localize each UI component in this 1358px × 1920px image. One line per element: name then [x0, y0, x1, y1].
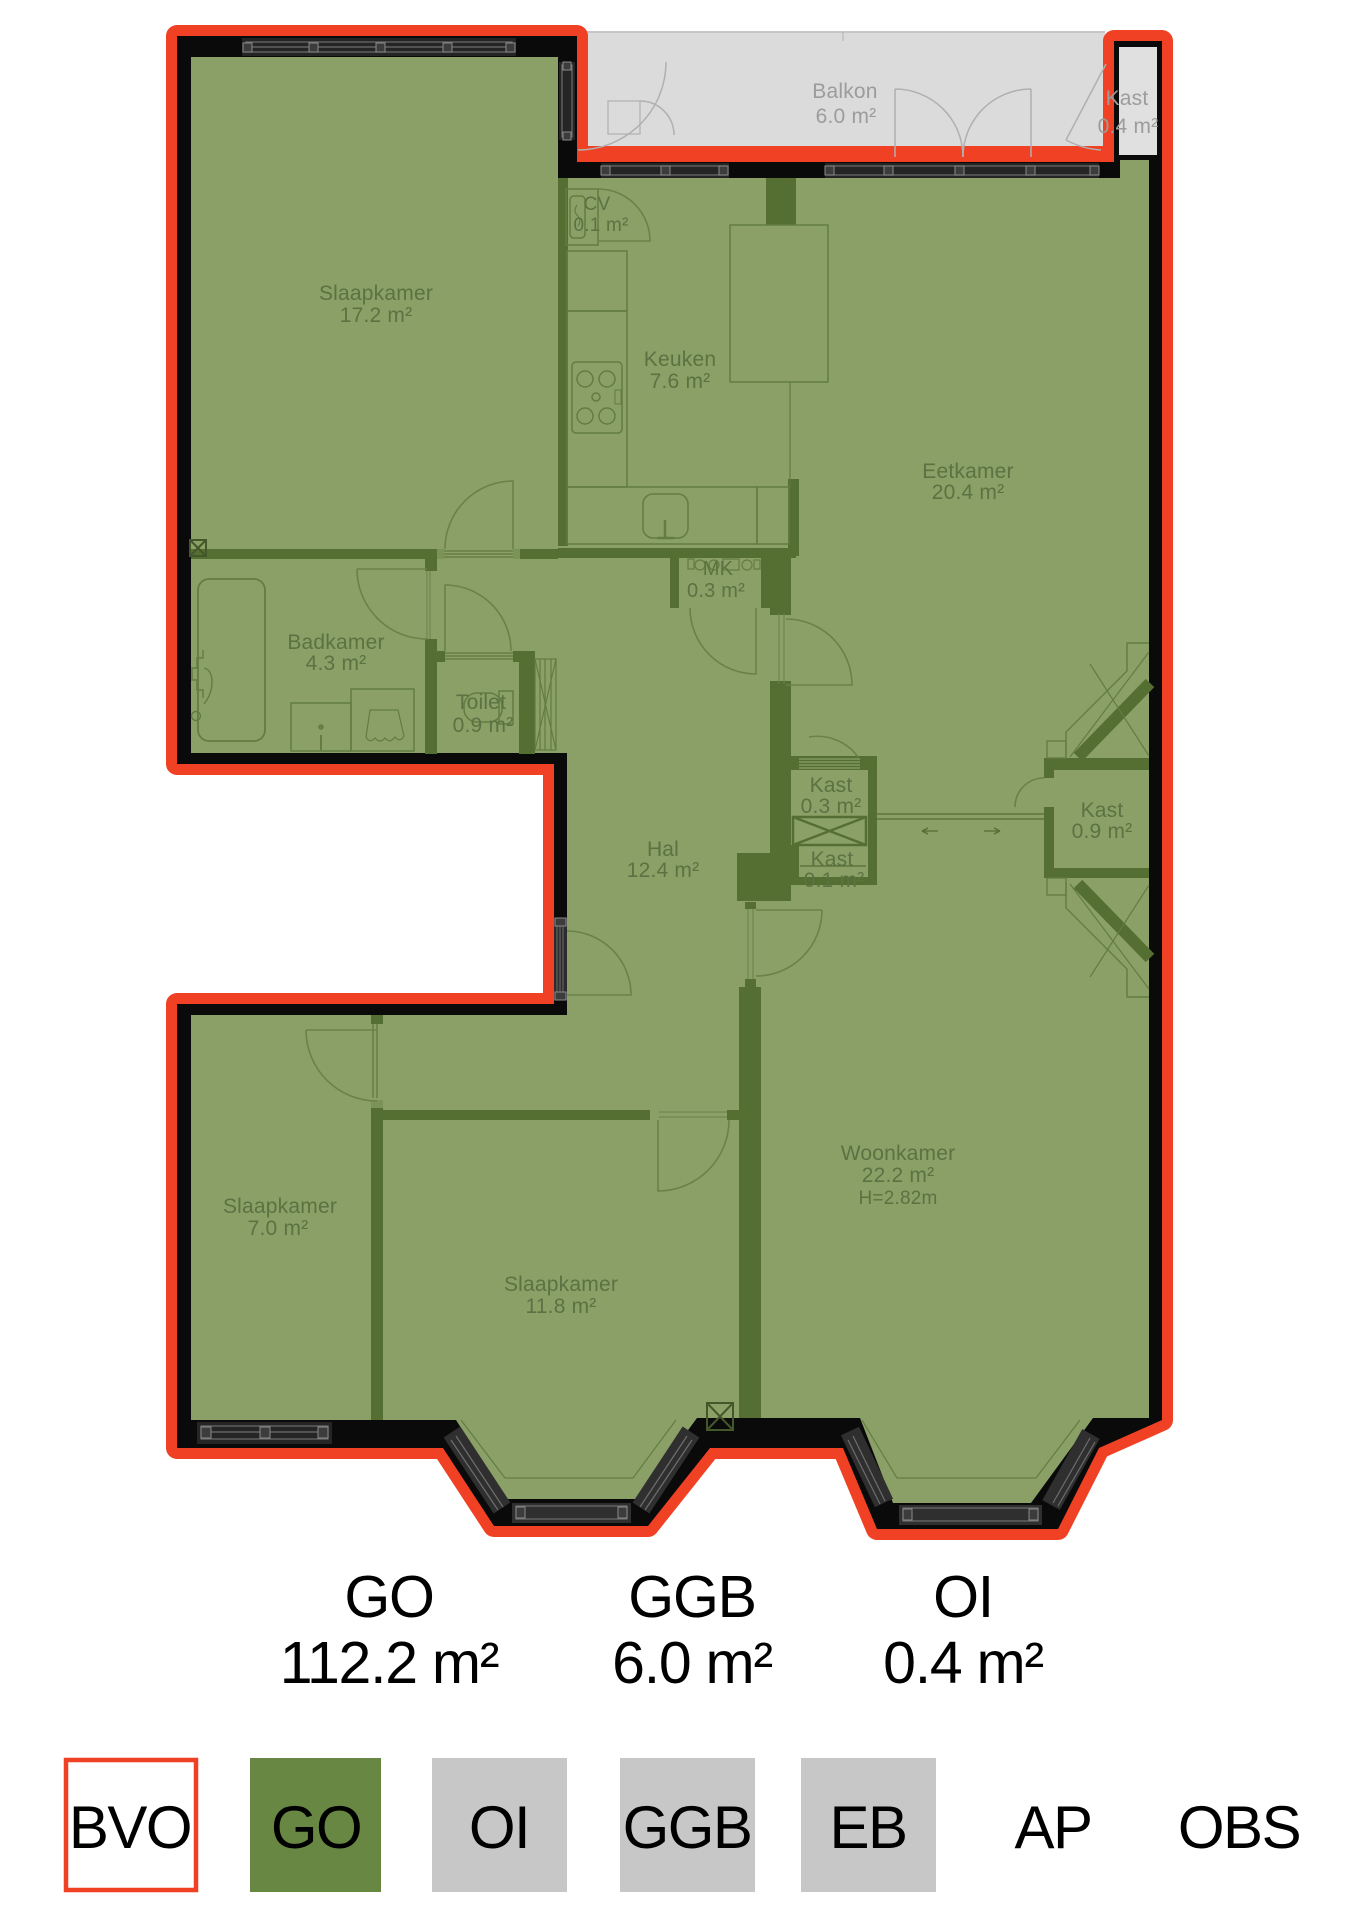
svg-text:4.3 m²: 4.3 m²	[306, 652, 367, 675]
svg-text:6.0 m²: 6.0 m²	[612, 1630, 772, 1696]
svg-text:Slaapkamer: Slaapkamer	[319, 282, 433, 305]
svg-text:OI: OI	[469, 1794, 529, 1861]
svg-text:6.0 m²: 6.0 m²	[816, 105, 877, 128]
svg-text:GO: GO	[271, 1794, 361, 1861]
svg-text:11.8 m²: 11.8 m²	[525, 1295, 596, 1318]
svg-text:CV: CV	[584, 194, 611, 215]
svg-text:Kast: Kast	[811, 848, 854, 871]
svg-text:GGB: GGB	[623, 1794, 752, 1861]
svg-text:Balkon: Balkon	[812, 80, 877, 103]
svg-text:0.9 m²: 0.9 m²	[453, 714, 514, 737]
svg-text:0.4 m²: 0.4 m²	[883, 1630, 1043, 1696]
svg-text:0.1 m²: 0.1 m²	[804, 869, 865, 892]
svg-text:MK: MK	[703, 558, 734, 580]
svg-text:0.3 m²: 0.3 m²	[687, 580, 745, 602]
svg-text:Kast: Kast	[1081, 799, 1124, 822]
svg-text:OBS: OBS	[1178, 1794, 1300, 1861]
svg-text:0.9 m²: 0.9 m²	[1072, 820, 1133, 843]
svg-text:Kast: Kast	[810, 774, 853, 797]
svg-text:Eetkamer: Eetkamer	[922, 460, 1013, 483]
svg-text:0.1 m²: 0.1 m²	[573, 215, 628, 236]
svg-text:GGB: GGB	[628, 1564, 755, 1630]
svg-text:Keuken: Keuken	[644, 348, 716, 371]
svg-text:17.2 m²: 17.2 m²	[340, 304, 413, 327]
svg-text:OI: OI	[933, 1564, 993, 1630]
svg-text:0.4 m²: 0.4 m²	[1098, 115, 1159, 138]
svg-text:20.4 m²: 20.4 m²	[932, 481, 1005, 504]
svg-text:112.2 m²: 112.2 m²	[280, 1630, 499, 1696]
svg-text:0.3 m²: 0.3 m²	[801, 795, 862, 818]
svg-text:Slaapkamer: Slaapkamer	[223, 1195, 337, 1218]
svg-text:Slaapkamer: Slaapkamer	[504, 1273, 618, 1296]
svg-text:GO: GO	[344, 1564, 433, 1630]
svg-text:Hal: Hal	[647, 838, 679, 861]
svg-text:H=2.82m: H=2.82m	[858, 1188, 937, 1209]
svg-text:AP: AP	[1014, 1794, 1091, 1861]
svg-text:22.2 m²: 22.2 m²	[862, 1164, 935, 1187]
svg-text:7.0 m²: 7.0 m²	[248, 1217, 309, 1240]
svg-text:Badkamer: Badkamer	[287, 631, 384, 654]
svg-text:7.6 m²: 7.6 m²	[650, 370, 711, 393]
svg-text:BVO: BVO	[69, 1794, 191, 1861]
svg-text:Kast: Kast	[1106, 87, 1149, 110]
svg-text:Woonkamer: Woonkamer	[841, 1142, 956, 1165]
svg-text:EB: EB	[829, 1794, 906, 1861]
svg-text:12.4 m²: 12.4 m²	[627, 859, 700, 882]
svg-text:Toilet: Toilet	[456, 691, 506, 714]
